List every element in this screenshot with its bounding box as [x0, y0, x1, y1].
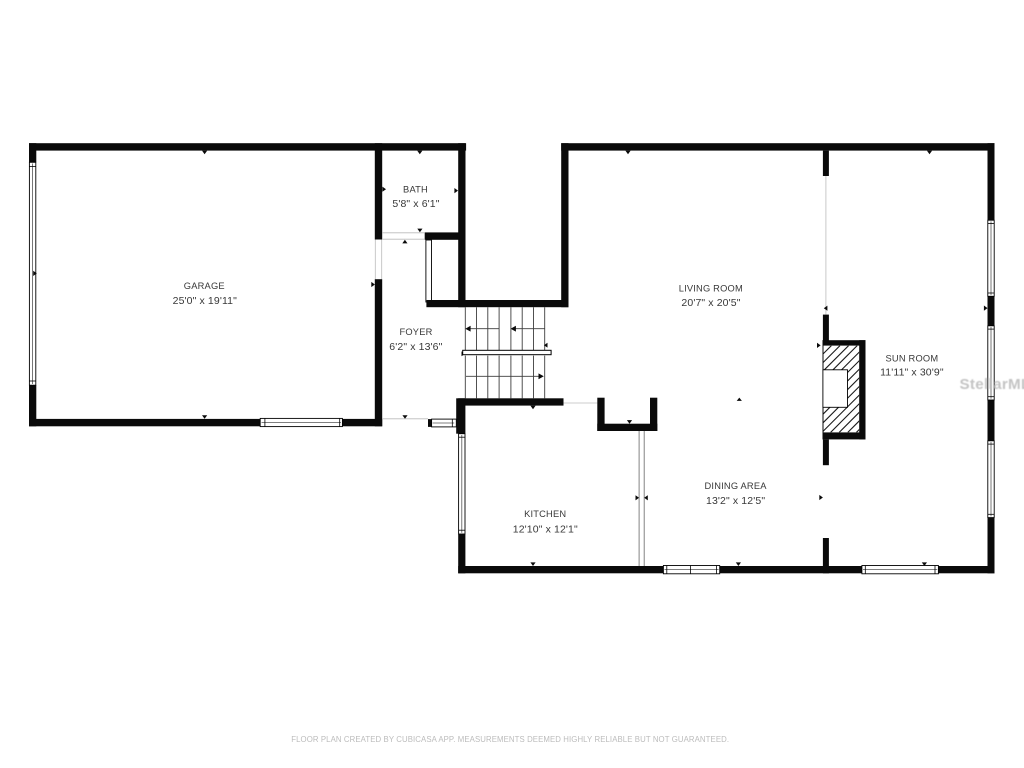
svg-text:13'2" x 12'5": 13'2" x 12'5" — [706, 495, 765, 507]
svg-text:StellarMLS: StellarMLS — [960, 376, 1024, 393]
svg-text:KITCHEN: KITCHEN — [524, 509, 566, 519]
svg-text:FOYER: FOYER — [399, 327, 432, 337]
svg-text:11'11" x 30'9": 11'11" x 30'9" — [880, 366, 944, 378]
svg-text:5'8" x 6'1": 5'8" x 6'1" — [392, 198, 439, 210]
svg-text:LIVING ROOM: LIVING ROOM — [679, 283, 743, 293]
svg-text:DINING AREA: DINING AREA — [705, 481, 768, 491]
svg-text:20'7" x 20'5": 20'7" x 20'5" — [681, 297, 740, 309]
svg-text:GARAGE: GARAGE — [184, 281, 225, 291]
svg-text:SUN ROOM: SUN ROOM — [886, 354, 939, 364]
svg-text:6'2" x 13'6": 6'2" x 13'6" — [389, 341, 442, 353]
svg-text:12'10" x 12'1": 12'10" x 12'1" — [513, 524, 578, 536]
svg-text:25'0" x 19'11": 25'0" x 19'11" — [173, 295, 237, 307]
svg-text:FLOOR PLAN CREATED BY CUBICASA: FLOOR PLAN CREATED BY CUBICASA APP. MEAS… — [291, 735, 729, 744]
svg-text:BATH: BATH — [403, 184, 428, 194]
